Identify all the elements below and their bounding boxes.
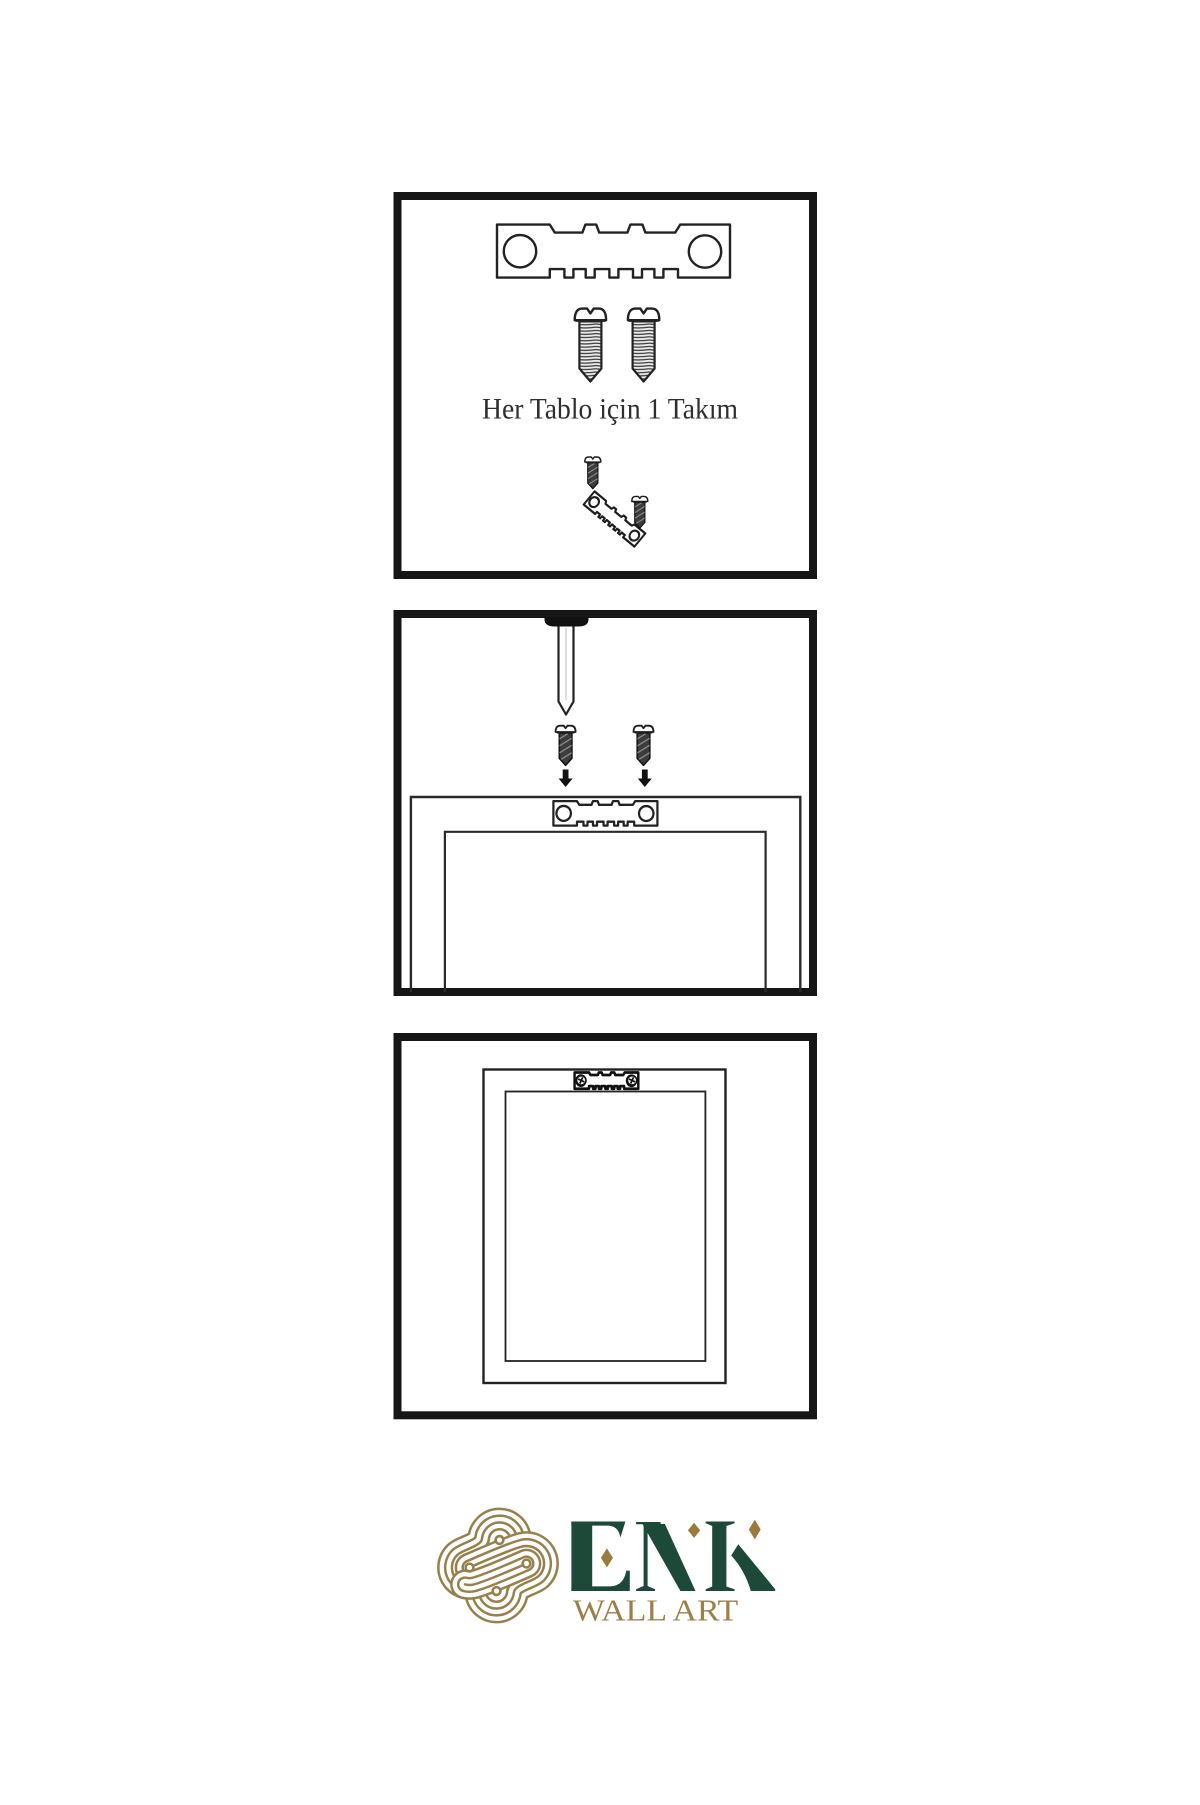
svg-text:Her Tablo için 1 Takım: Her Tablo için 1 Takım	[482, 393, 738, 426]
svg-text:WALL ART: WALL ART	[573, 1592, 738, 1627]
